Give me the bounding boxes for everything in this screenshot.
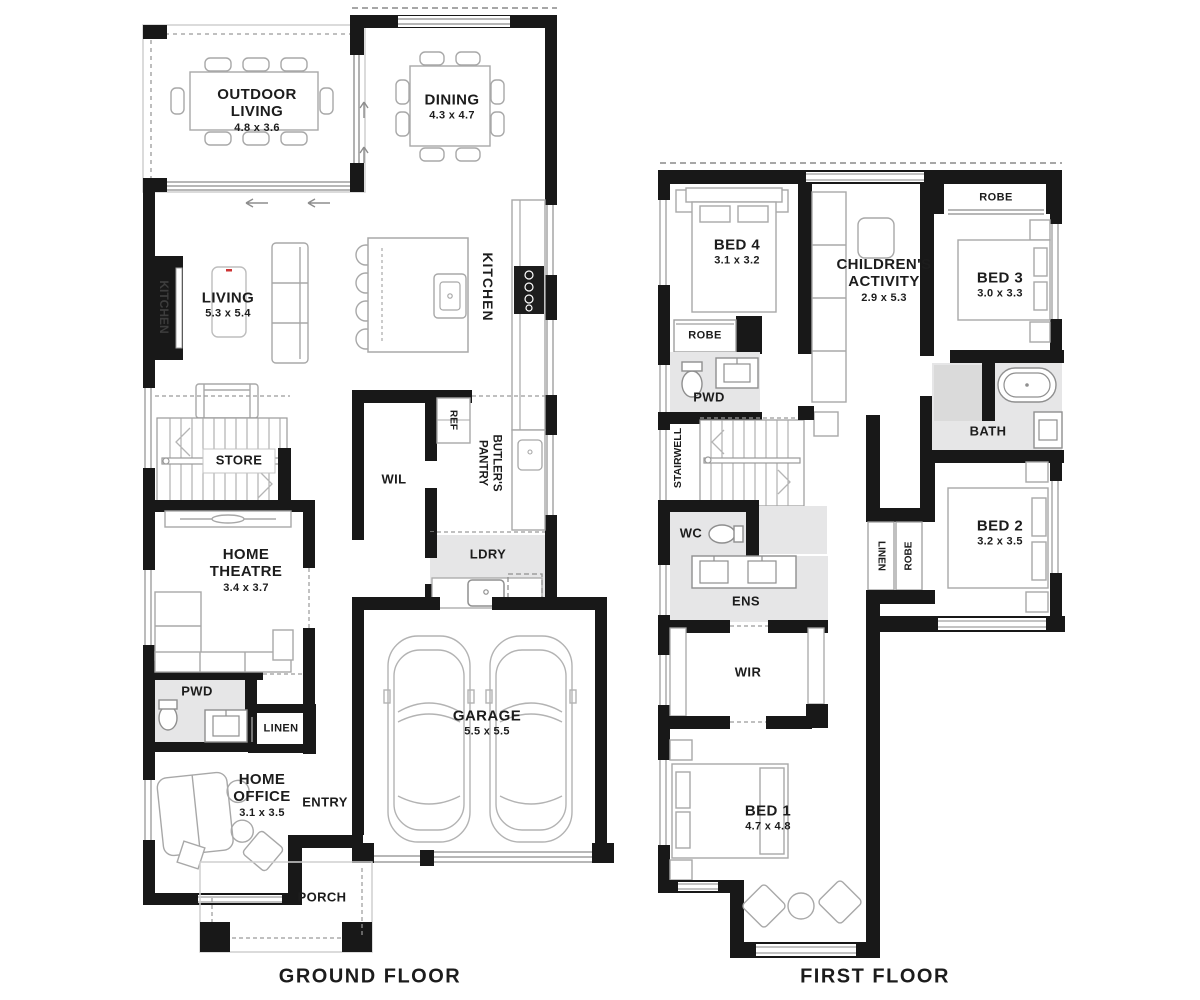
label-wil: WIL: [381, 473, 406, 488]
label-bath: BATH: [970, 425, 1007, 440]
label-ref: REF: [448, 410, 459, 430]
label-robe-bed4: ROBE: [688, 330, 721, 343]
car-1: [384, 636, 474, 842]
label-robe-bed2: ROBE: [904, 542, 915, 571]
label-home-theatre: HOME THEATRE 3.4 x 3.7: [196, 546, 296, 594]
bed1-sitting-area: [658, 879, 880, 958]
label-childrens-activity: CHILDREN'S ACTIVITY 2.9 x 5.3: [829, 256, 939, 304]
label-porch: PORCH: [298, 891, 347, 906]
label-ground-pwd: PWD: [181, 685, 213, 700]
label-bed2: BED 2 3.2 x 3.5: [977, 518, 1023, 549]
label-wir: WIR: [735, 666, 761, 681]
label-ground-linen: LINEN: [264, 723, 299, 736]
label-stairwell: STAIRWELL: [672, 428, 684, 488]
living-marker: [226, 269, 232, 272]
cooktop: [514, 266, 544, 314]
activity-desk: [858, 218, 894, 258]
island-sink: [434, 274, 466, 318]
childrens-activity-furniture: [812, 192, 894, 436]
entry-chair: [242, 830, 284, 872]
floor-plan-graphics: [0, 0, 1200, 1000]
first-floor-title: FIRST FLOOR: [800, 966, 950, 989]
bath-vanity: [1034, 412, 1062, 448]
label-entry: ENTRY: [302, 796, 348, 811]
kitchen-island: [356, 238, 468, 352]
label-store: STORE: [216, 454, 263, 469]
label-living: LIVING 5.3 x 5.4: [202, 290, 254, 321]
shower: [934, 365, 982, 421]
label-robe-bed3: ROBE: [979, 192, 1012, 205]
side-table: [788, 893, 814, 919]
label-wc: WC: [680, 527, 702, 542]
label-kitchen: KITCHEN: [480, 252, 496, 321]
label-butlers-pantry: BUTLER'S PANTRY: [475, 432, 504, 494]
label-ens: ENS: [732, 595, 760, 610]
wc-toilet: [709, 525, 735, 543]
porch-structure: [200, 862, 372, 952]
living-furniture: [196, 243, 308, 418]
label-dining: DINING 4.3 x 4.7: [425, 92, 480, 123]
label-ldry: LDRY: [470, 548, 507, 563]
car-2: [486, 636, 576, 842]
ground-floor-title: GROUND FLOOR: [279, 966, 461, 989]
label-home-office: HOME OFFICE 3.1 x 3.5: [222, 771, 302, 819]
first-left-wall: [658, 170, 670, 893]
ground-powder-room: [143, 678, 316, 754]
ground-floor-plan: [143, 8, 614, 952]
armchair-2: [817, 879, 862, 924]
first-stairs: [700, 406, 814, 506]
label-first-linen: LINEN: [876, 541, 887, 571]
label-first-pwd: PWD: [693, 391, 725, 406]
armchair-1: [741, 883, 786, 928]
label-outdoor-living: OUTDOOR LIVING 4.8 x 3.6: [202, 86, 312, 134]
label-bed4: BED 4 3.1 x 3.2: [714, 237, 760, 268]
bathroom: [932, 363, 1064, 463]
ground-right-wall: [545, 15, 557, 605]
ens-shower: [759, 506, 827, 554]
first-powder-room: [658, 352, 762, 424]
label-bed1: BED 1 4.7 x 4.8: [745, 803, 791, 834]
label-bed3: BED 3 3.0 x 3.3: [977, 270, 1023, 301]
label-kitchen-feature: KITCHEN: [157, 280, 171, 333]
label-garage: GARAGE 5.5 x 5.5: [453, 708, 521, 739]
floor-plan-page: { "ground_floor": { "title": "GROUND FLO…: [0, 0, 1200, 1000]
